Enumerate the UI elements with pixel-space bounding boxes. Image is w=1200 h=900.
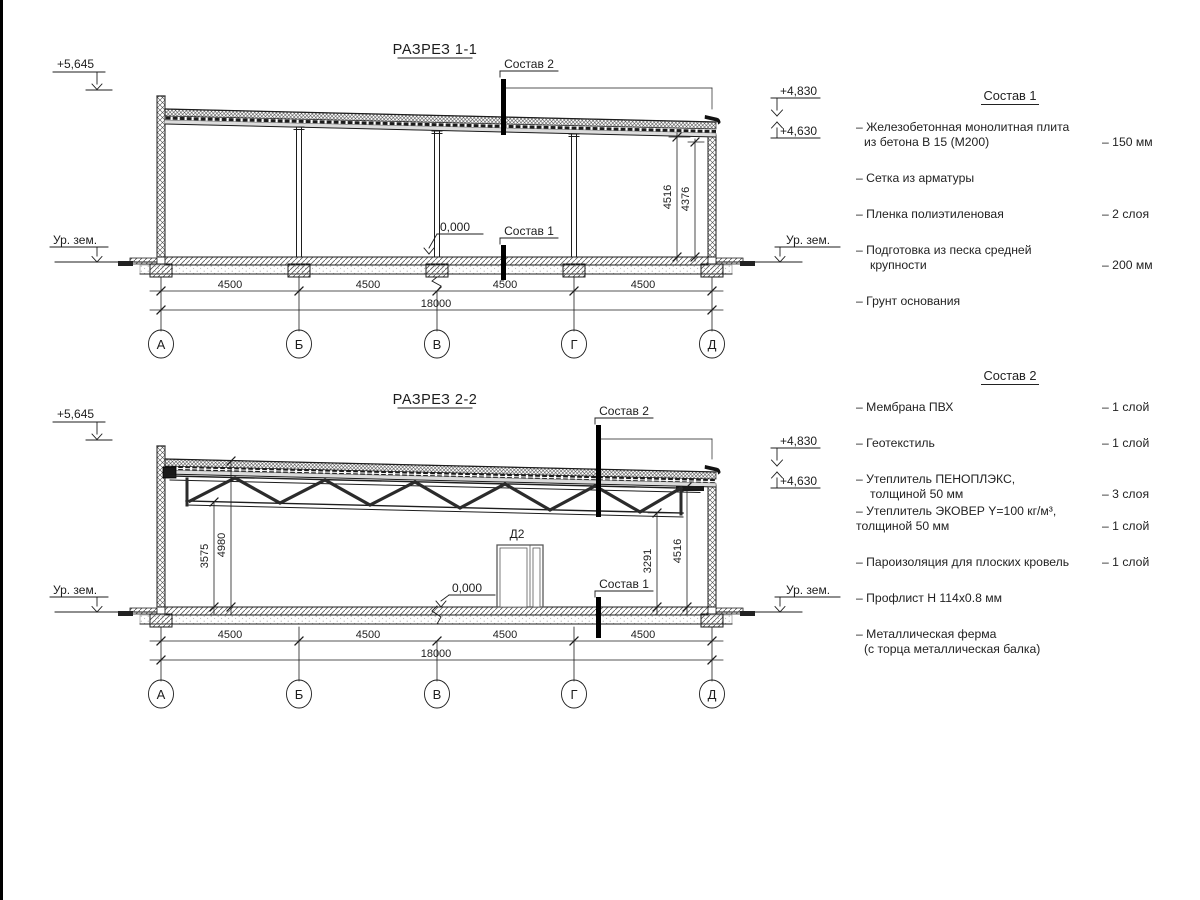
legend-item: – Профлист Н 114х0.8 мм: [856, 591, 1164, 606]
item-text: толщиной 50 мм: [856, 519, 1056, 534]
item-text: крупности: [856, 258, 1032, 273]
section-1-title: РАЗРЕЗ 1-1: [393, 42, 478, 58]
zero-label: 0,000: [452, 581, 482, 595]
callout-label: Состав 1: [504, 224, 554, 238]
item-text: толщиной 50 мм: [856, 487, 1015, 502]
axis-letter: Г: [570, 337, 577, 352]
axis-letter: В: [433, 687, 442, 702]
section-1-ground-left: Ур. зем.: [50, 233, 108, 262]
legend-item: – Пленка полиэтиленовая – 2 слоя: [856, 207, 1164, 222]
ground-label: Ур. зем.: [786, 233, 830, 247]
axis-letter: Б: [295, 687, 304, 702]
axis-letter: А: [157, 337, 166, 352]
legend-item: – Геотекстиль – 1 слой: [856, 436, 1164, 451]
section-1-elev-roof-top: +4,830: [771, 84, 820, 116]
zero-label: 0,000: [440, 220, 470, 234]
legend-item: – Железобетонная монолитная плита из бет…: [856, 120, 1164, 150]
axis-letter: А: [157, 687, 166, 702]
dim-4516-s2: 4516: [672, 539, 684, 563]
dim-4376-s1: 4376: [680, 187, 692, 211]
section-2-zero-level: 0,000: [436, 581, 495, 607]
dim-3575: 3575: [199, 544, 211, 568]
axis-letter: В: [433, 337, 442, 352]
item-text: – Профлист Н 114х0.8 мм: [856, 591, 1002, 606]
elev-label: +4,630: [780, 124, 817, 138]
item-text: – Геотекстиль: [856, 436, 935, 451]
legend-item: – Металлическая ферма (с торца металличе…: [856, 627, 1164, 657]
item-text: – Грунт основания: [856, 294, 960, 309]
axis-letter: Г: [570, 687, 577, 702]
item-text: из бетона В 15 (М200): [856, 135, 1069, 150]
ground-label: Ур. зем.: [786, 583, 830, 597]
dim-4516-s1: 4516: [662, 185, 674, 209]
callout-label: Состав 2: [504, 57, 554, 71]
item-text: – Утеплитель ПЕНОПЛЭКС,: [856, 472, 1015, 487]
item-text: (с торца металлическая балка): [856, 642, 1040, 657]
total-dim: 18000: [421, 298, 452, 310]
bay-dim: 4500: [356, 629, 380, 641]
door-d2: [497, 545, 543, 607]
composition-1-title: Состав 1: [856, 88, 1164, 103]
composition-1-legend: Состав 1 – Железобетонная монолитная пли…: [856, 88, 1164, 330]
item-text: – Металлическая ферма: [856, 627, 1040, 642]
section-2-ground-left: Ур. зем.: [50, 583, 108, 612]
elev-label: +5,645: [57, 407, 94, 421]
item-value: – 1 слой: [1102, 555, 1164, 570]
bay-dim: 4500: [356, 279, 380, 291]
legend-item: – Грунт основания: [856, 294, 1164, 309]
ground-label: Ур. зем.: [53, 583, 97, 597]
item-value: – 1 слой: [1102, 519, 1164, 534]
section-2-title: РАЗРЕЗ 2-2: [393, 392, 478, 408]
composition-2-title: Состав 2: [856, 368, 1164, 383]
legend-item: – Подготовка из песка средней крупности …: [856, 243, 1164, 273]
section-1-elev-parapet: +5,645: [53, 57, 112, 90]
item-text: – Мембрана ПВХ: [856, 400, 953, 415]
callout-label: Состав 1: [599, 577, 649, 591]
legend-item: – Пароизоляция для плоских кровель – 1 с…: [856, 555, 1164, 570]
bay-dim: 4500: [218, 279, 242, 291]
item-value: – 3 слоя: [1102, 487, 1164, 502]
bay-dim: 4500: [493, 629, 517, 641]
item-value: – 200 мм: [1102, 258, 1164, 273]
section-2-roof-callout: Состав 2: [595, 404, 712, 517]
item-value: – 2 слоя: [1102, 207, 1164, 222]
section-1-elev-roof-bottom: +4,630: [771, 122, 820, 138]
section-1-zero-level: 0,000: [424, 220, 483, 254]
elev-label: +4,830: [780, 434, 817, 448]
callout-label: Состав 2: [599, 404, 649, 418]
door-label: Д2: [510, 527, 525, 541]
drawing-sheet: РАЗРЕЗ 1-1: [0, 0, 1200, 900]
section-2: РАЗРЕЗ 2-2: [50, 392, 840, 708]
item-text: – Пленка полиэтиленовая: [856, 207, 1004, 222]
item-text: – Утеплитель ЭКОВЕР Y=100 кг/м³,: [856, 504, 1056, 519]
elev-label: +4,630: [780, 474, 817, 488]
axis-letter: Д: [708, 687, 717, 702]
section-2-ground-right: Ур. зем.: [775, 583, 840, 612]
item-text: – Сетка из арматуры: [856, 171, 974, 186]
legend-item: – Утеплитель ПЕНОПЛЭКС, толщиной 50 мм –…: [856, 472, 1164, 502]
item-text: – Пароизоляция для плоских кровель: [856, 555, 1069, 570]
legend-item: – Утеплитель ЭКОВЕР Y=100 кг/м³, толщино…: [856, 504, 1164, 534]
item-value: – 1 слой: [1102, 436, 1164, 451]
section-2-elev-roof-bottom: +4,630: [771, 472, 820, 488]
section-2-elev-roof-top: +4,830: [771, 434, 820, 466]
dim-3291: 3291: [642, 549, 654, 573]
composition-2-legend: Состав 2 – Мембрана ПВХ – 1 слой – Геоте…: [856, 368, 1164, 678]
elev-label: +5,645: [57, 57, 94, 71]
item-value: – 150 мм: [1102, 135, 1164, 150]
item-text: – Подготовка из песка средней: [856, 243, 1032, 258]
item-text: – Железобетонная монолитная плита: [856, 120, 1069, 135]
section-2-elev-parapet: +5,645: [53, 407, 112, 440]
legend-item: – Сетка из арматуры: [856, 171, 1164, 186]
axis-letter: Б: [295, 337, 304, 352]
bay-dim: 4500: [631, 629, 655, 641]
bay-dim: 4500: [493, 279, 517, 291]
axis-letter: Д: [708, 337, 717, 352]
bay-dim: 4500: [631, 279, 655, 291]
total-dim: 18000: [421, 648, 452, 660]
legend-item: – Мембрана ПВХ – 1 слой: [856, 400, 1164, 415]
item-value: – 1 слой: [1102, 400, 1164, 415]
dim-4980: 4980: [216, 533, 228, 557]
bay-dim: 4500: [218, 629, 242, 641]
ground-label: Ур. зем.: [53, 233, 97, 247]
section-1-ground-right: Ур. зем.: [775, 233, 840, 262]
elev-label: +4,830: [780, 84, 817, 98]
section-1: РАЗРЕЗ 1-1: [50, 42, 840, 358]
